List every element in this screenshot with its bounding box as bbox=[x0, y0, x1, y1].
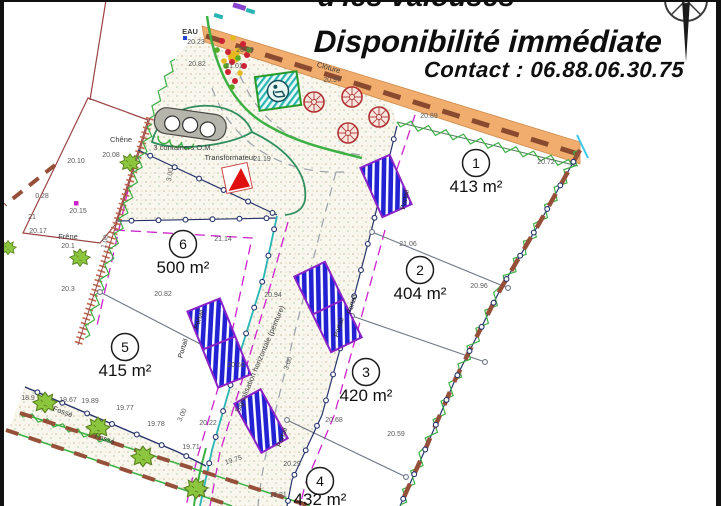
fence-post bbox=[444, 398, 449, 403]
fence-post bbox=[401, 496, 406, 501]
fence-post bbox=[286, 499, 291, 504]
fence-post bbox=[545, 207, 550, 212]
fence-post bbox=[270, 211, 275, 216]
fence-post bbox=[110, 422, 115, 427]
lot-area: 404 m² bbox=[394, 284, 447, 303]
fence-post bbox=[197, 176, 202, 181]
fence-post bbox=[134, 432, 139, 437]
measurement-label: 20.17 bbox=[29, 228, 47, 235]
measurement-label: 20.68 bbox=[325, 417, 343, 424]
measurement-label: 20.08 bbox=[102, 152, 120, 159]
boundary-node bbox=[98, 290, 103, 295]
measurement-label: 20.89 bbox=[420, 113, 438, 120]
fence-post bbox=[324, 398, 329, 403]
fence-post bbox=[272, 227, 277, 232]
measurement-label: 21.19 bbox=[253, 156, 271, 163]
measurement-label: 20.59 bbox=[387, 431, 405, 438]
boundary-node bbox=[483, 360, 488, 365]
fence-post bbox=[359, 268, 364, 273]
fence-post bbox=[156, 218, 161, 223]
measurement-label: 20.3 bbox=[61, 286, 75, 293]
boundary-node bbox=[506, 286, 511, 291]
handicap-parking bbox=[255, 71, 301, 111]
fence-post bbox=[558, 183, 563, 188]
measurement-label: 20.22 bbox=[199, 420, 217, 427]
measurement-label: 20.60 bbox=[227, 362, 245, 369]
lot-area: 432 m² bbox=[294, 490, 347, 506]
measurement-label: 19.89 bbox=[81, 398, 99, 405]
contact-phone: Contact : 06.88.06.30.75 bbox=[423, 57, 685, 83]
measurement-label: 20.15 bbox=[69, 208, 87, 215]
transformer-symbol bbox=[222, 163, 253, 194]
measurement-label: 21.14 bbox=[214, 236, 232, 243]
measurement-label: 19.78 bbox=[147, 421, 165, 428]
feature-label: Transformateur bbox=[205, 153, 256, 162]
fence-post bbox=[303, 448, 308, 453]
site-plan-image: 20.8920.2320.8221.0120.9720.8920.7220.10… bbox=[0, 0, 721, 506]
measurement-label: 19.71 bbox=[182, 444, 200, 451]
fence-post bbox=[244, 331, 249, 336]
measurement-label: 20.82 bbox=[154, 291, 172, 298]
boundary-node bbox=[370, 230, 375, 235]
lot-area: 413 m² bbox=[450, 177, 503, 196]
fence-post bbox=[246, 199, 251, 204]
fence-post bbox=[365, 242, 370, 247]
fence-post bbox=[221, 409, 226, 414]
measurement-label: 18.9 bbox=[21, 395, 35, 402]
fence-post bbox=[423, 447, 428, 452]
measurement-label: 19.67 bbox=[59, 397, 77, 404]
availability-text: Disponibilité immédiate bbox=[313, 24, 663, 60]
fence-post bbox=[159, 443, 164, 448]
fence-post bbox=[252, 305, 257, 310]
measurement-label: 20.10 bbox=[67, 158, 85, 165]
boundary-node bbox=[404, 475, 409, 480]
feature-label: Chêne bbox=[110, 135, 132, 144]
fence-post bbox=[237, 216, 242, 221]
measurement-label: 20.82 bbox=[188, 61, 206, 68]
fence-post bbox=[518, 253, 523, 258]
measurement-label: 20.96 bbox=[470, 283, 488, 290]
measurement-label: 0.28 bbox=[35, 193, 49, 200]
fence-post bbox=[184, 454, 189, 459]
fence-post bbox=[264, 216, 269, 221]
lot-area: 500 m² bbox=[157, 258, 210, 277]
measurement-label: 20.94 bbox=[264, 292, 282, 299]
measurement-label: 20.1 bbox=[61, 243, 75, 250]
measurement-label: 21.06 bbox=[399, 241, 417, 248]
measurement-label: 20.72 bbox=[537, 159, 555, 166]
fence-post bbox=[412, 472, 417, 477]
fence-post bbox=[292, 472, 297, 477]
fence-post bbox=[266, 253, 271, 258]
measurement-label: 21.01 bbox=[225, 63, 243, 70]
lot-number: 3 bbox=[362, 364, 370, 380]
fence-post bbox=[129, 218, 134, 223]
fence-post bbox=[433, 422, 438, 427]
measurement-label: 19.77 bbox=[116, 405, 134, 412]
measurement-label: 20.89 bbox=[236, 47, 254, 54]
lot-area: 420 m² bbox=[340, 386, 393, 405]
lot-number: 1 bbox=[472, 155, 480, 171]
fence-post bbox=[183, 217, 188, 222]
lot-number: 2 bbox=[416, 262, 424, 278]
fence-post bbox=[455, 373, 460, 378]
lot-area: 415 m² bbox=[99, 361, 152, 380]
measurement-label: 21 bbox=[28, 214, 36, 221]
fence-post bbox=[207, 461, 212, 466]
lot-number: 5 bbox=[121, 339, 129, 355]
fence-post bbox=[467, 349, 472, 354]
measurement-label: 20.97 bbox=[323, 77, 341, 84]
fence-post bbox=[260, 279, 265, 284]
fence-post bbox=[571, 159, 576, 164]
feature-label: EAU bbox=[182, 27, 198, 36]
fence-post bbox=[479, 325, 484, 330]
fence-post bbox=[85, 411, 90, 416]
measurement-label: 20.29 bbox=[283, 461, 301, 468]
fence-post bbox=[531, 230, 536, 235]
feature-label: Frêne bbox=[58, 232, 78, 241]
fence-post bbox=[315, 423, 320, 428]
fence-post bbox=[213, 435, 218, 440]
lot-number: 6 bbox=[179, 236, 187, 252]
measurement-label: 19.81 bbox=[269, 492, 287, 499]
fence-post bbox=[331, 372, 336, 377]
fence-post bbox=[391, 137, 396, 142]
feature-label: 3 containers O.M. bbox=[153, 143, 212, 152]
fence-post bbox=[210, 217, 215, 222]
plan-title-partial: d'les valouses bbox=[317, 0, 516, 14]
fence-post bbox=[148, 153, 153, 158]
fence-post bbox=[372, 215, 377, 220]
boundary-node bbox=[285, 418, 290, 423]
fence-post bbox=[491, 300, 496, 305]
measurement-label: 20.23 bbox=[187, 39, 205, 46]
lot-number: 4 bbox=[316, 473, 324, 489]
fence-post bbox=[221, 188, 226, 193]
fence-post bbox=[504, 277, 509, 282]
